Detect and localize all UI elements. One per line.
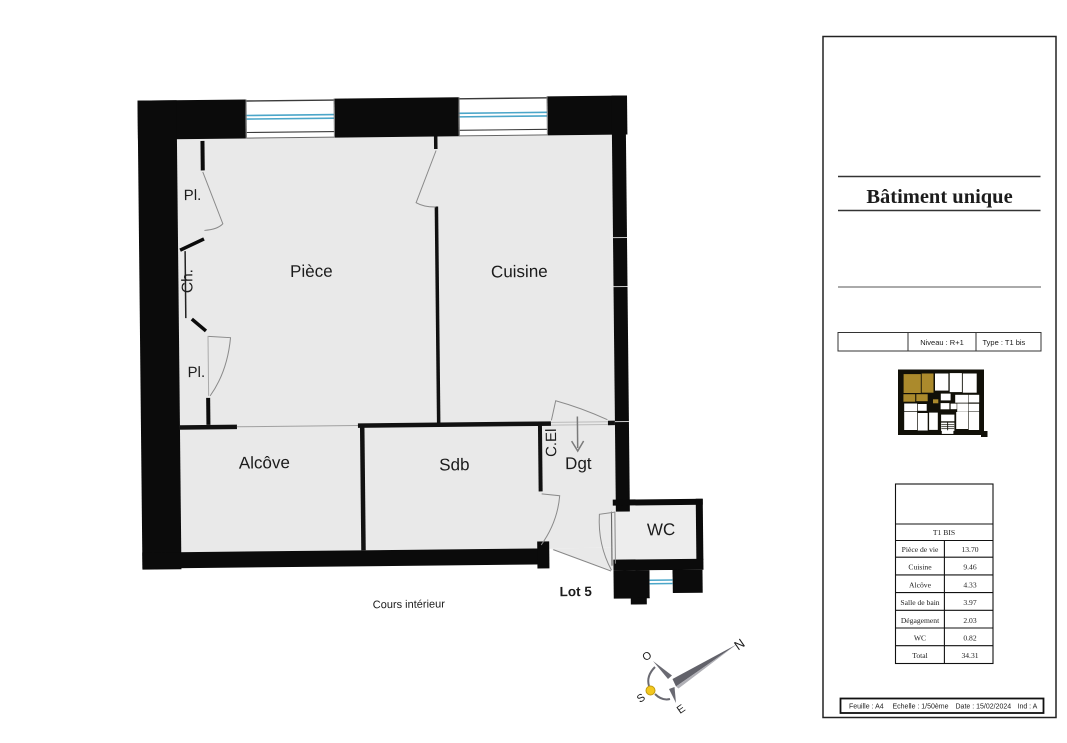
svg-text:Pl.: Pl. xyxy=(184,187,202,204)
svg-text:O: O xyxy=(640,649,654,664)
svg-text:Echelle : 1/50ème: Echelle : 1/50ème xyxy=(893,703,949,710)
svg-text:Cuisine: Cuisine xyxy=(491,262,548,282)
svg-text:Total: Total xyxy=(912,651,928,660)
svg-text:4.33: 4.33 xyxy=(963,580,976,589)
svg-text:Sdb: Sdb xyxy=(439,455,469,474)
svg-text:Date : 15/02/2024: Date : 15/02/2024 xyxy=(956,703,1012,710)
svg-text:Cuisine: Cuisine xyxy=(908,563,932,572)
svg-text:3.97: 3.97 xyxy=(963,598,976,607)
svg-text:WC: WC xyxy=(914,634,926,643)
svg-text:Pièce: Pièce xyxy=(290,262,333,281)
svg-text:Cours intérieur: Cours intérieur xyxy=(373,598,446,611)
svg-text:C.El: C.El xyxy=(543,429,560,458)
svg-text:Pl.: Pl. xyxy=(188,364,206,381)
svg-text:N: N xyxy=(731,635,747,653)
svg-text:9.46: 9.46 xyxy=(963,563,976,572)
svg-text:E: E xyxy=(675,703,688,717)
svg-text:Feuille : A4: Feuille : A4 xyxy=(849,703,884,710)
svg-text:0.82: 0.82 xyxy=(963,634,976,643)
svg-text:Niveau : R+1: Niveau : R+1 xyxy=(920,338,964,347)
svg-text:Dégagement: Dégagement xyxy=(901,616,940,625)
svg-text:2.03: 2.03 xyxy=(963,616,976,625)
svg-text:Alcôve: Alcôve xyxy=(909,580,932,589)
svg-text:Bâtiment unique: Bâtiment unique xyxy=(866,186,1012,208)
svg-text:WC: WC xyxy=(647,520,676,539)
svg-text:Type : T1 bis: Type : T1 bis xyxy=(983,338,1026,347)
svg-text:S: S xyxy=(635,692,648,706)
svg-text:Pièce de vie: Pièce de vie xyxy=(902,545,939,554)
svg-text:Alcôve: Alcôve xyxy=(239,453,290,473)
svg-text:Lot 5: Lot 5 xyxy=(559,584,592,599)
svg-text:Salle de bain: Salle de bain xyxy=(900,598,939,607)
svg-text:Dgt: Dgt xyxy=(565,454,592,473)
svg-text:Ind : A: Ind : A xyxy=(1018,703,1038,710)
svg-text:13.70: 13.70 xyxy=(961,545,978,554)
svg-text:T1 BIS: T1 BIS xyxy=(933,528,955,537)
svg-text:Ch.: Ch. xyxy=(179,269,196,293)
svg-text:34.31: 34.31 xyxy=(961,651,978,660)
